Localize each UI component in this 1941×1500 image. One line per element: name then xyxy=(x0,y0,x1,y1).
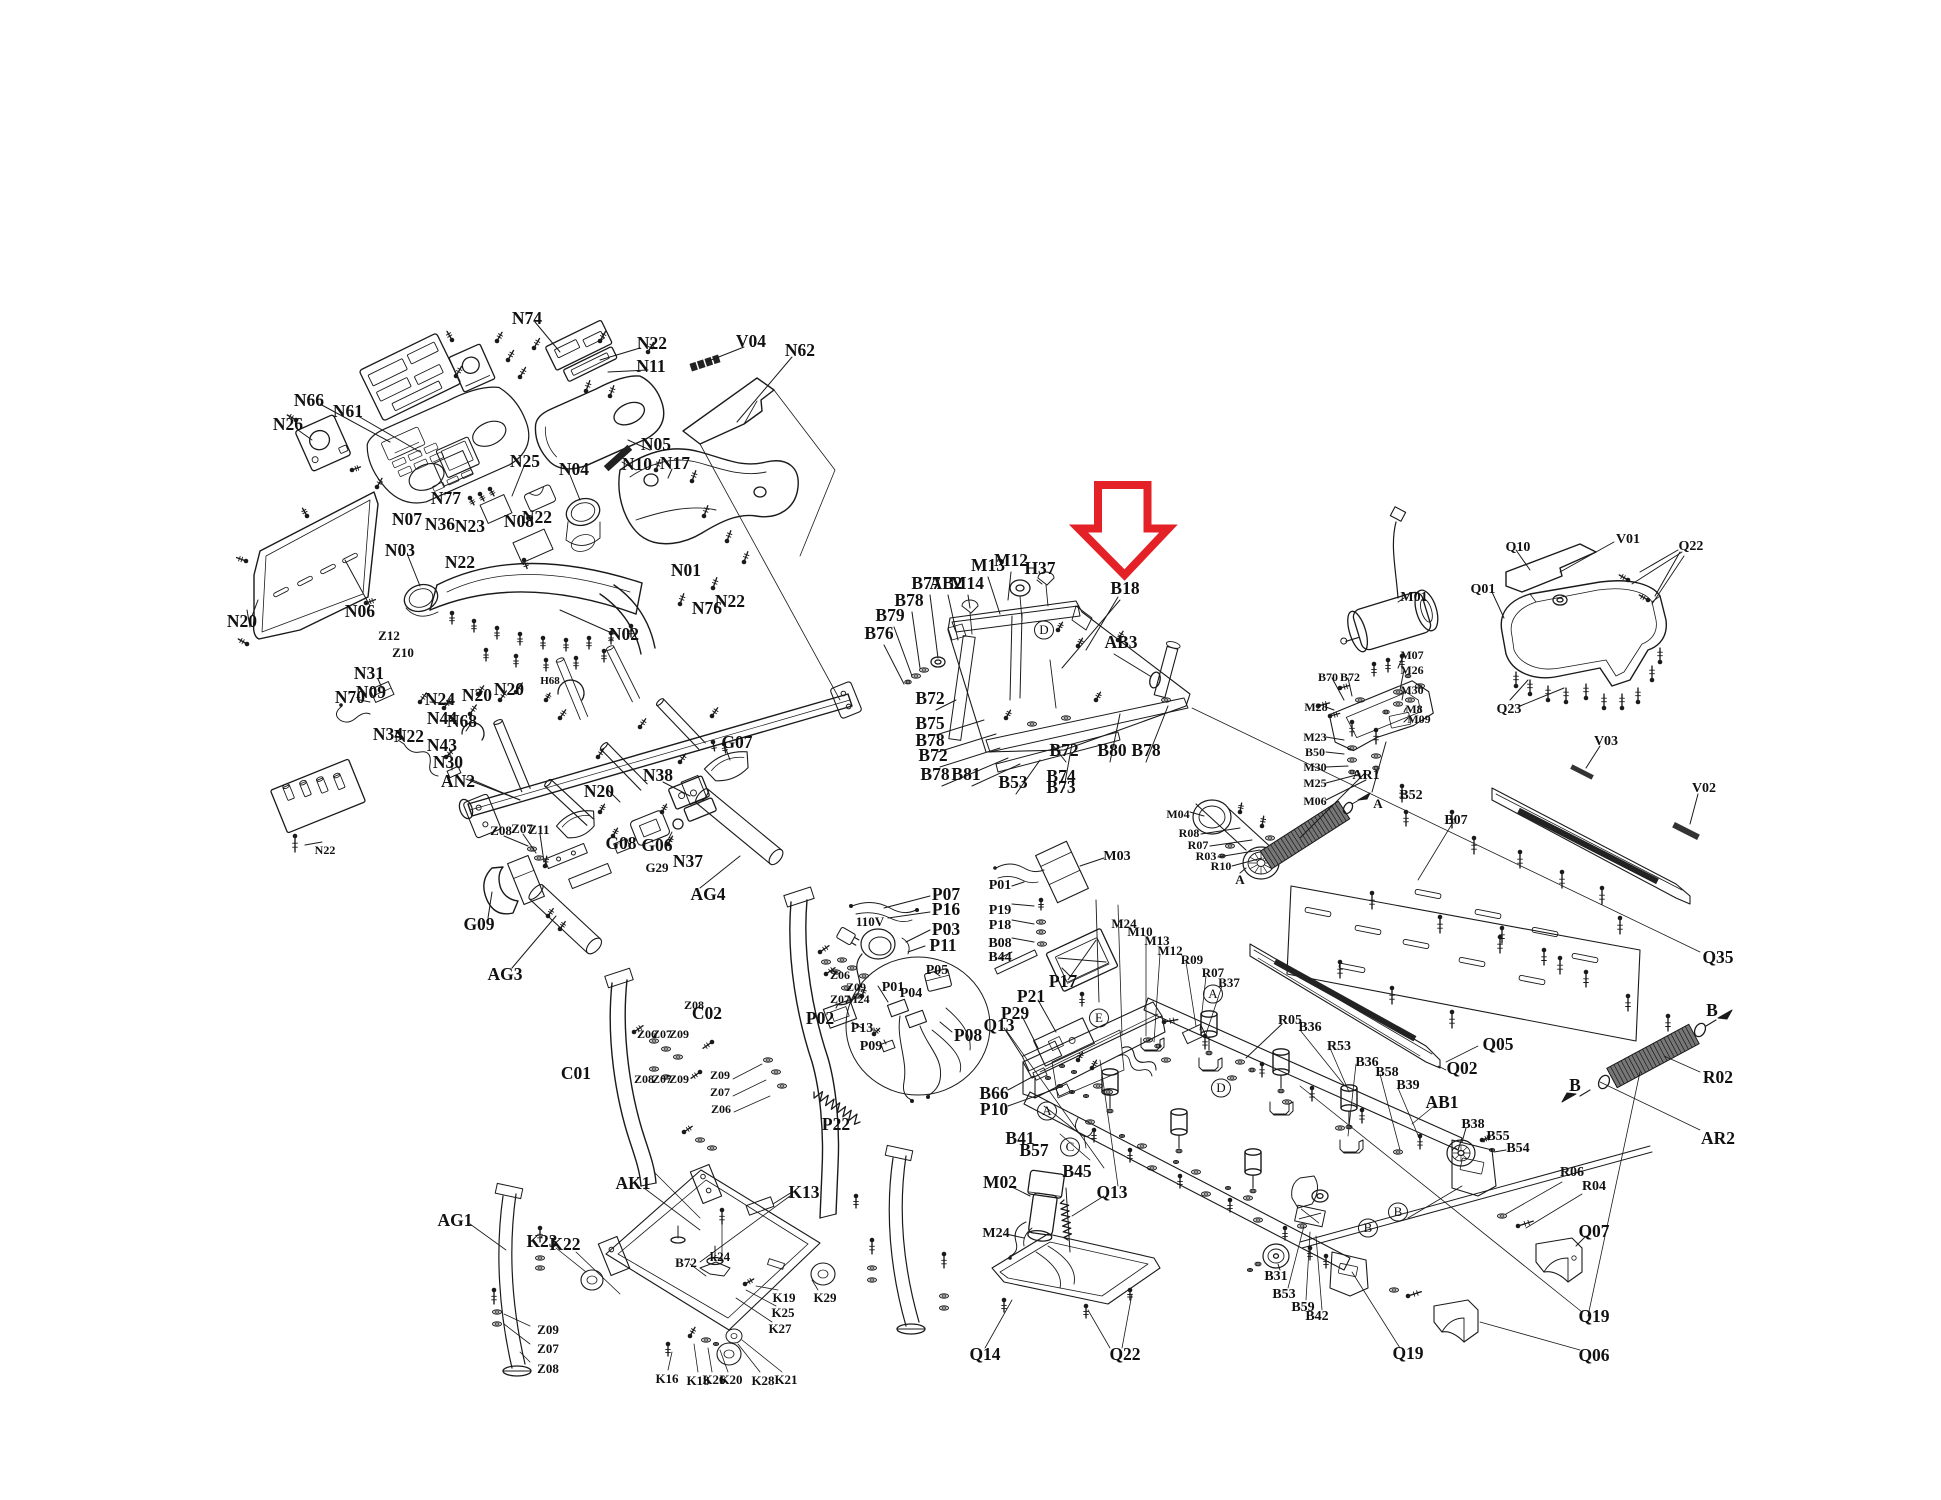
svg-text:B76: B76 xyxy=(864,623,893,643)
svg-text:V04: V04 xyxy=(736,331,766,351)
svg-text:G09: G09 xyxy=(463,914,494,934)
svg-text:P05: P05 xyxy=(926,963,949,978)
svg-text:H68: H68 xyxy=(540,675,560,687)
svg-text:N62: N62 xyxy=(785,340,815,360)
svg-text:M24: M24 xyxy=(846,992,869,1006)
svg-text:N22: N22 xyxy=(445,552,475,572)
svg-text:C01: C01 xyxy=(561,1063,591,1083)
svg-text:N24: N24 xyxy=(425,689,455,709)
svg-text:D: D xyxy=(1216,1080,1225,1095)
svg-text:M09: M09 xyxy=(1407,712,1430,726)
svg-text:K25: K25 xyxy=(771,1305,795,1320)
svg-text:A: A xyxy=(1208,986,1218,1001)
svg-text:M14: M14 xyxy=(950,573,984,593)
svg-text:Q02: Q02 xyxy=(1446,1058,1477,1078)
svg-text:M01: M01 xyxy=(1400,590,1427,605)
svg-text:M03: M03 xyxy=(1103,849,1130,864)
svg-text:Q22: Q22 xyxy=(1679,539,1704,554)
svg-text:Z11: Z11 xyxy=(529,822,550,837)
svg-text:N22: N22 xyxy=(637,333,667,353)
svg-text:Z07: Z07 xyxy=(710,1085,730,1099)
svg-text:A: A xyxy=(1373,796,1383,811)
svg-text:P19: P19 xyxy=(989,903,1012,918)
svg-text:N05: N05 xyxy=(641,434,671,454)
svg-text:Q05: Q05 xyxy=(1482,1034,1513,1054)
svg-text:B54: B54 xyxy=(1506,1141,1529,1156)
svg-text:B72: B72 xyxy=(1340,670,1360,684)
svg-text:V02: V02 xyxy=(1692,781,1716,796)
svg-text:B52: B52 xyxy=(1399,788,1422,803)
svg-text:B72: B72 xyxy=(675,1255,697,1270)
svg-text:B80: B80 xyxy=(1097,740,1126,760)
svg-text:N11: N11 xyxy=(636,356,665,376)
svg-text:N77: N77 xyxy=(431,488,461,508)
svg-text:B72: B72 xyxy=(1049,740,1078,760)
svg-text:V03: V03 xyxy=(1594,734,1618,749)
svg-text:Z12: Z12 xyxy=(378,628,400,643)
svg-text:AB3: AB3 xyxy=(1104,632,1137,652)
svg-text:N22: N22 xyxy=(394,726,424,746)
svg-text:B45: B45 xyxy=(1062,1161,1091,1181)
svg-text:K27: K27 xyxy=(768,1321,792,1336)
svg-text:Q19: Q19 xyxy=(1392,1343,1423,1363)
svg-text:P09: P09 xyxy=(860,1039,883,1054)
svg-text:P04: P04 xyxy=(900,986,923,1001)
svg-text:N07: N07 xyxy=(392,509,422,529)
svg-text:P02: P02 xyxy=(806,1008,834,1028)
svg-text:A: A xyxy=(1235,872,1245,887)
svg-text:B44: B44 xyxy=(988,950,1011,965)
svg-text:B07: B07 xyxy=(1444,813,1467,828)
svg-text:Q35: Q35 xyxy=(1702,947,1733,967)
svg-text:G29: G29 xyxy=(645,860,669,875)
svg-text:N61: N61 xyxy=(333,401,363,421)
svg-text:N74: N74 xyxy=(512,308,542,328)
svg-text:k24: k24 xyxy=(710,1249,731,1264)
svg-text:M25: M25 xyxy=(1303,776,1326,790)
svg-text:Z09: Z09 xyxy=(710,1068,730,1082)
svg-text:N30: N30 xyxy=(433,752,463,772)
svg-text:Q19: Q19 xyxy=(1578,1306,1609,1326)
svg-text:N22: N22 xyxy=(315,843,336,857)
svg-text:H37: H37 xyxy=(1024,558,1055,578)
svg-text:Z10: Z10 xyxy=(392,645,414,660)
svg-text:P11: P11 xyxy=(929,935,956,955)
svg-text:P10: P10 xyxy=(980,1099,1008,1119)
svg-text:B53: B53 xyxy=(998,772,1027,792)
svg-text:C: C xyxy=(1066,1139,1075,1154)
svg-text:AR2: AR2 xyxy=(1701,1128,1735,1148)
svg-text:B38: B38 xyxy=(1461,1117,1484,1132)
svg-text:AR1: AR1 xyxy=(1352,768,1379,783)
svg-text:M07: M07 xyxy=(1400,648,1423,662)
svg-text:AG4: AG4 xyxy=(691,884,726,904)
svg-text:B70: B70 xyxy=(1318,670,1338,684)
svg-text:AN2: AN2 xyxy=(441,771,475,791)
svg-text:R10: R10 xyxy=(1211,859,1232,873)
svg-text:M04: M04 xyxy=(1166,807,1189,821)
svg-text:N17: N17 xyxy=(660,453,690,473)
svg-text:P22: P22 xyxy=(822,1114,850,1134)
svg-text:N06: N06 xyxy=(345,601,375,621)
svg-text:V01: V01 xyxy=(1616,532,1640,547)
svg-text:N26: N26 xyxy=(273,414,303,434)
svg-text:C02: C02 xyxy=(692,1003,722,1023)
svg-text:B36: B36 xyxy=(1298,1020,1321,1035)
svg-text:R02: R02 xyxy=(1703,1067,1733,1087)
svg-text:Q13: Q13 xyxy=(983,1015,1014,1035)
svg-text:Z09: Z09 xyxy=(669,1027,689,1041)
svg-text:AK1: AK1 xyxy=(616,1173,651,1193)
svg-text:M02: M02 xyxy=(983,1172,1017,1192)
svg-text:Z09: Z09 xyxy=(669,1072,689,1086)
svg-text:M26: M26 xyxy=(1400,663,1423,677)
svg-text:Z09: Z09 xyxy=(537,1322,559,1337)
svg-text:Q06: Q06 xyxy=(1578,1345,1609,1365)
svg-text:K22: K22 xyxy=(549,1234,580,1254)
svg-text:B72: B72 xyxy=(918,745,947,765)
svg-text:K21: K21 xyxy=(774,1372,797,1387)
svg-text:B: B xyxy=(1569,1075,1581,1095)
svg-text:Z07: Z07 xyxy=(537,1341,559,1356)
svg-text:110V: 110V xyxy=(856,914,885,929)
svg-text:K29: K29 xyxy=(813,1290,837,1305)
svg-text:M23: M23 xyxy=(1303,730,1326,744)
svg-text:N76: N76 xyxy=(692,598,722,618)
svg-text:G06: G06 xyxy=(641,835,672,855)
svg-text:K28: K28 xyxy=(751,1373,775,1388)
svg-text:B58: B58 xyxy=(1375,1065,1398,1080)
svg-text:K13: K13 xyxy=(788,1182,819,1202)
svg-text:Q01: Q01 xyxy=(1471,582,1496,597)
svg-text:B37: B37 xyxy=(1218,975,1240,990)
svg-text:N10: N10 xyxy=(622,454,652,474)
svg-text:B08: B08 xyxy=(988,936,1011,951)
svg-text:K16: K16 xyxy=(655,1371,679,1386)
svg-text:N23: N23 xyxy=(455,516,485,536)
svg-text:N04: N04 xyxy=(559,459,589,479)
svg-text:N31: N31 xyxy=(354,663,384,683)
svg-text:G07: G07 xyxy=(721,732,752,752)
svg-text:Q13: Q13 xyxy=(1096,1182,1127,1202)
svg-text:M30: M30 xyxy=(1303,760,1326,774)
svg-text:M13: M13 xyxy=(971,555,1005,575)
svg-text:B72: B72 xyxy=(915,688,944,708)
svg-text:N38: N38 xyxy=(643,765,673,785)
svg-text:B78: B78 xyxy=(920,764,949,784)
svg-text:B73: B73 xyxy=(1046,777,1075,797)
svg-text:Q14: Q14 xyxy=(969,1344,1000,1364)
svg-text:P13: P13 xyxy=(851,1021,874,1036)
svg-text:B: B xyxy=(1364,1220,1373,1235)
svg-text:N22: N22 xyxy=(522,507,552,527)
svg-text:AG1: AG1 xyxy=(438,1210,473,1230)
svg-text:A: A xyxy=(1042,1103,1052,1118)
svg-text:P16: P16 xyxy=(932,899,960,919)
svg-text:B50: B50 xyxy=(1305,745,1325,759)
svg-text:N20: N20 xyxy=(227,611,257,631)
svg-text:B: B xyxy=(1706,1000,1718,1020)
svg-text:Q07: Q07 xyxy=(1578,1221,1609,1241)
svg-text:R04: R04 xyxy=(1582,1179,1606,1194)
svg-text:B31: B31 xyxy=(1264,1269,1287,1284)
svg-text:B57: B57 xyxy=(1019,1140,1048,1160)
svg-text:P18: P18 xyxy=(989,918,1012,933)
svg-text:K20: K20 xyxy=(719,1372,742,1387)
svg-text:B18: B18 xyxy=(1110,578,1139,598)
svg-text:N01: N01 xyxy=(671,560,701,580)
svg-text:B81: B81 xyxy=(951,764,980,784)
svg-text:D: D xyxy=(1039,622,1048,637)
svg-text:P17: P17 xyxy=(1049,971,1077,991)
svg-text:R53: R53 xyxy=(1327,1039,1351,1054)
svg-text:M12: M12 xyxy=(1157,943,1182,958)
svg-text:M28: M28 xyxy=(1304,700,1327,714)
svg-text:M30: M30 xyxy=(1400,683,1423,697)
svg-text:G08: G08 xyxy=(605,833,636,853)
svg-text:Q10: Q10 xyxy=(1506,540,1531,555)
svg-text:M24: M24 xyxy=(982,1226,1009,1241)
svg-text:N09: N09 xyxy=(356,682,386,702)
svg-text:Q22: Q22 xyxy=(1109,1344,1140,1364)
svg-text:B39: B39 xyxy=(1396,1078,1419,1093)
svg-text:N20: N20 xyxy=(584,781,614,801)
svg-text:E: E xyxy=(1095,1010,1103,1025)
svg-text:B79: B79 xyxy=(875,605,904,625)
svg-text:P08: P08 xyxy=(954,1025,982,1045)
svg-text:Z06: Z06 xyxy=(711,1102,731,1116)
svg-text:N25: N25 xyxy=(510,451,540,471)
svg-text:N02: N02 xyxy=(609,624,639,644)
svg-text:R06: R06 xyxy=(1560,1165,1584,1180)
svg-text:P01: P01 xyxy=(989,878,1012,893)
svg-text:N66: N66 xyxy=(294,390,324,410)
svg-text:Q23: Q23 xyxy=(1497,702,1522,717)
svg-text:B: B xyxy=(1394,1204,1403,1219)
svg-text:N37: N37 xyxy=(673,851,703,871)
svg-text:B42: B42 xyxy=(1305,1309,1328,1324)
svg-text:B78: B78 xyxy=(1131,740,1160,760)
svg-text:AG3: AG3 xyxy=(488,964,523,984)
svg-text:R09: R09 xyxy=(1181,952,1204,967)
svg-text:Z08: Z08 xyxy=(490,823,512,838)
svg-text:N68: N68 xyxy=(447,711,477,731)
svg-text:N03: N03 xyxy=(385,540,415,560)
svg-text:N20: N20 xyxy=(494,679,524,699)
svg-text:K19: K19 xyxy=(772,1290,796,1305)
svg-text:M06: M06 xyxy=(1303,794,1326,808)
svg-text:AB1: AB1 xyxy=(1425,1092,1458,1112)
svg-text:N36: N36 xyxy=(425,514,455,534)
svg-text:Z08: Z08 xyxy=(537,1361,559,1376)
svg-text:N20: N20 xyxy=(462,685,492,705)
